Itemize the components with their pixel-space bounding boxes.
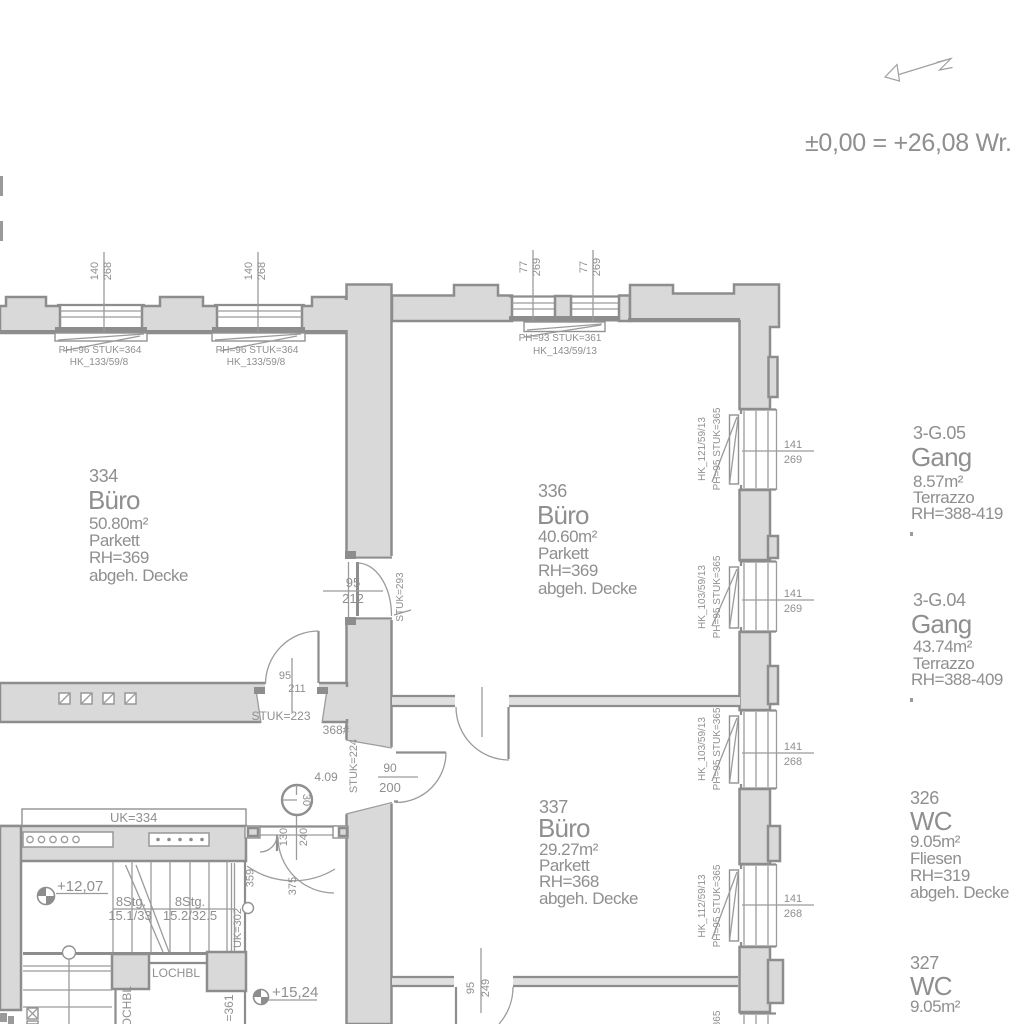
svg-text:212: 212 (342, 591, 364, 606)
svg-text:3-G.04: 3-G.04 (913, 590, 966, 610)
svg-text:200: 200 (379, 780, 401, 795)
svg-text:141: 141 (784, 439, 802, 451)
svg-text:Büro: Büro (537, 500, 589, 530)
svg-text:HK_103/59/13: HK_103/59/13 (697, 565, 708, 629)
svg-text:249: 249 (480, 979, 492, 997)
svg-text:268: 268 (102, 262, 114, 280)
svg-text:95: 95 (465, 982, 477, 994)
svg-text:±0,00 = +26,08 Wr.: ±0,00 = +26,08 Wr. (805, 129, 1012, 157)
svg-text:269: 269 (784, 454, 802, 466)
svg-text:269: 269 (531, 258, 543, 276)
svg-text:+15,24: +15,24 (272, 984, 318, 1001)
svg-text:PH=93 STUK=361: PH=93 STUK=361 (519, 333, 602, 344)
svg-text:RH=369: RH=369 (89, 548, 149, 567)
svg-text:141: 141 (784, 588, 802, 600)
svg-text:abgeh. Decke: abgeh. Decke (539, 889, 638, 908)
svg-text:140: 140 (243, 262, 255, 280)
svg-text:HK_133/59/8: HK_133/59/8 (227, 357, 286, 368)
svg-text:269: 269 (784, 603, 802, 615)
svg-text:240: 240 (298, 828, 310, 846)
svg-text:140: 140 (89, 262, 101, 280)
svg-text:Gang: Gang (911, 609, 971, 639)
svg-text:9.05m²: 9.05m² (910, 997, 961, 1016)
svg-text:abgeh. Decke: abgeh. Decke (910, 883, 1009, 902)
svg-text:LOCHBL: LOCHBL (152, 966, 200, 980)
svg-text:RH=388-409: RH=388-409 (911, 670, 1003, 689)
svg-text:141: 141 (784, 893, 802, 905)
svg-text:90: 90 (383, 761, 397, 775)
svg-text:268: 268 (256, 262, 268, 280)
svg-text:HK_133/59/8: HK_133/59/8 (70, 357, 129, 368)
svg-text:Büro: Büro (88, 485, 140, 515)
svg-text:+12,07: +12,07 (57, 878, 103, 895)
svg-text:4.09: 4.09 (314, 770, 338, 784)
svg-text:PH=95 STUK=365: PH=95 STUK=365 (712, 407, 723, 490)
svg-text:STUK=293: STUK=293 (395, 572, 406, 622)
svg-text:HK_112/59/13: HK_112/59/13 (697, 874, 708, 938)
svg-text:77: 77 (578, 261, 590, 273)
svg-text:141: 141 (784, 741, 802, 753)
svg-text:Büro: Büro (538, 813, 590, 843)
svg-text:PH=96 STUK=364: PH=96 STUK=364 (59, 345, 142, 356)
svg-text:Gang: Gang (911, 442, 971, 472)
svg-text:15.2/32.5: 15.2/32.5 (163, 908, 217, 923)
svg-text:368#: 368# (323, 723, 350, 737)
svg-text:375: 375 (287, 877, 299, 895)
svg-text:15.1/33: 15.1/33 (108, 908, 151, 923)
svg-text:336: 336 (538, 481, 567, 501)
svg-text:327: 327 (910, 953, 939, 973)
svg-text:30: 30 (300, 794, 312, 806)
svg-text:STUK=224: STUK=224 (348, 739, 360, 793)
svg-text:211: 211 (288, 683, 306, 695)
svg-text:269: 269 (591, 258, 603, 276)
svg-text:359: 359 (245, 869, 257, 887)
svg-text:95: 95 (346, 575, 360, 590)
svg-text:UK=302: UK=302 (232, 908, 244, 948)
svg-text:PH=96 STUK=364: PH=96 STUK=364 (216, 345, 299, 356)
svg-text:8Stg.: 8Stg. (116, 894, 146, 909)
svg-text:UK=334: UK=334 (110, 810, 157, 825)
svg-text:STUK=223: STUK=223 (251, 709, 310, 723)
svg-text:PH=95 STUK=365: PH=95 STUK=365 (712, 864, 723, 947)
svg-text:95: 95 (279, 670, 291, 682)
svg-text:PH=95 STUK=365: PH=95 STUK=365 (712, 555, 723, 638)
svg-text:77: 77 (518, 261, 530, 273)
svg-text:8Stg.: 8Stg. (175, 894, 205, 909)
svg-text:268: 268 (784, 908, 802, 920)
svg-text:HK_121/59/13: HK_121/59/13 (697, 417, 708, 481)
svg-text:326: 326 (910, 788, 939, 808)
svg-text:HK_103/59/13: HK_103/59/13 (697, 717, 708, 781)
svg-text:PH=95 STUK=365: PH=95 STUK=365 (712, 1010, 723, 1024)
svg-text:3-G.05: 3-G.05 (913, 423, 966, 443)
svg-text:130: 130 (278, 828, 290, 846)
svg-text:268: 268 (784, 756, 802, 768)
svg-text:HK_143/59/13: HK_143/59/13 (533, 346, 597, 357)
svg-text:LOCHBL: LOCHBL (120, 986, 134, 1024)
svg-text:RH=369: RH=369 (538, 561, 598, 580)
svg-text:PH=95 STUK=365: PH=95 STUK=365 (712, 707, 723, 790)
svg-text:RH=388-419: RH=388-419 (911, 504, 1003, 523)
svg-text:334: 334 (89, 466, 118, 486)
svg-text:=361: =361 (222, 994, 236, 1021)
svg-text:abgeh. Decke: abgeh. Decke (89, 566, 188, 585)
svg-text:abgeh. Decke: abgeh. Decke (538, 579, 637, 598)
